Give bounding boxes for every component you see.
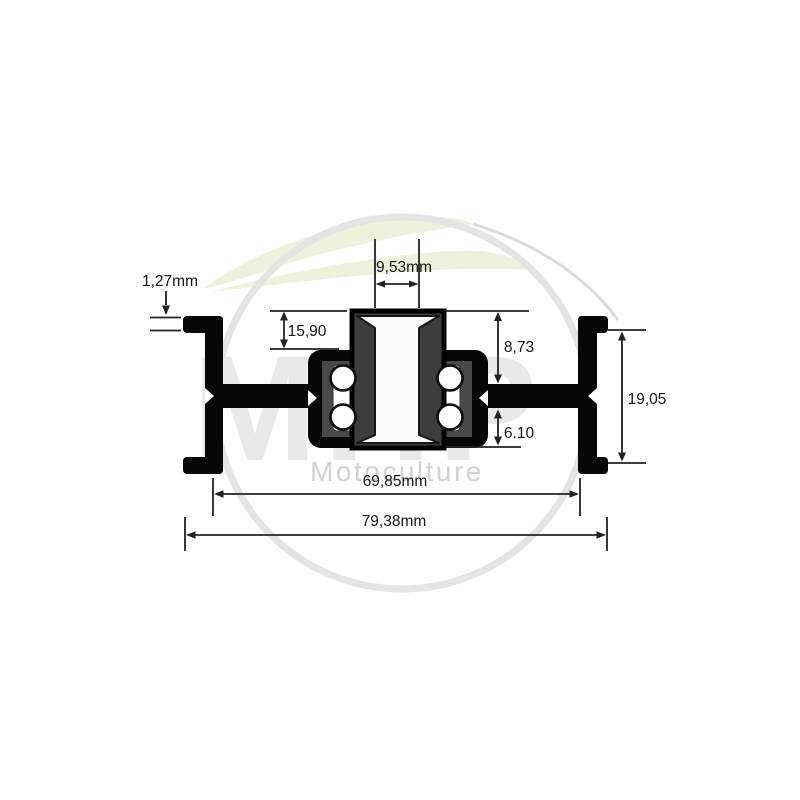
bearing-ball: [438, 366, 463, 391]
dim-label-hub-upper-height: 8,73: [504, 339, 534, 357]
dim-label-bore-width: 9,53mm: [376, 259, 432, 277]
pulley-technical-drawing: MHP Motoculture: [0, 0, 800, 800]
bearing-ball: [331, 405, 356, 430]
left-web: [222, 384, 310, 408]
center-hub: [352, 311, 444, 448]
dim-label-hub-protrusion: 15,90: [288, 323, 327, 341]
dim-label-hub-lower-height: 6.10: [504, 425, 534, 443]
left-flange: [183, 316, 223, 474]
bearing-ball: [331, 366, 356, 391]
dim-label-flange-height: 19,05: [628, 391, 667, 409]
dim-label-inner-width: 69,85mm: [363, 473, 428, 491]
pulley-cross-section: [0, 0, 800, 800]
dim-label-flange-lip-thickness: 1,27mm: [142, 273, 198, 291]
dim-label-overall-width: 79,38mm: [362, 513, 427, 531]
right-web: [486, 384, 579, 408]
right-flange: [578, 316, 608, 474]
bearing-ball: [438, 405, 463, 430]
dim-flange-lip-thickness: [150, 291, 181, 331]
